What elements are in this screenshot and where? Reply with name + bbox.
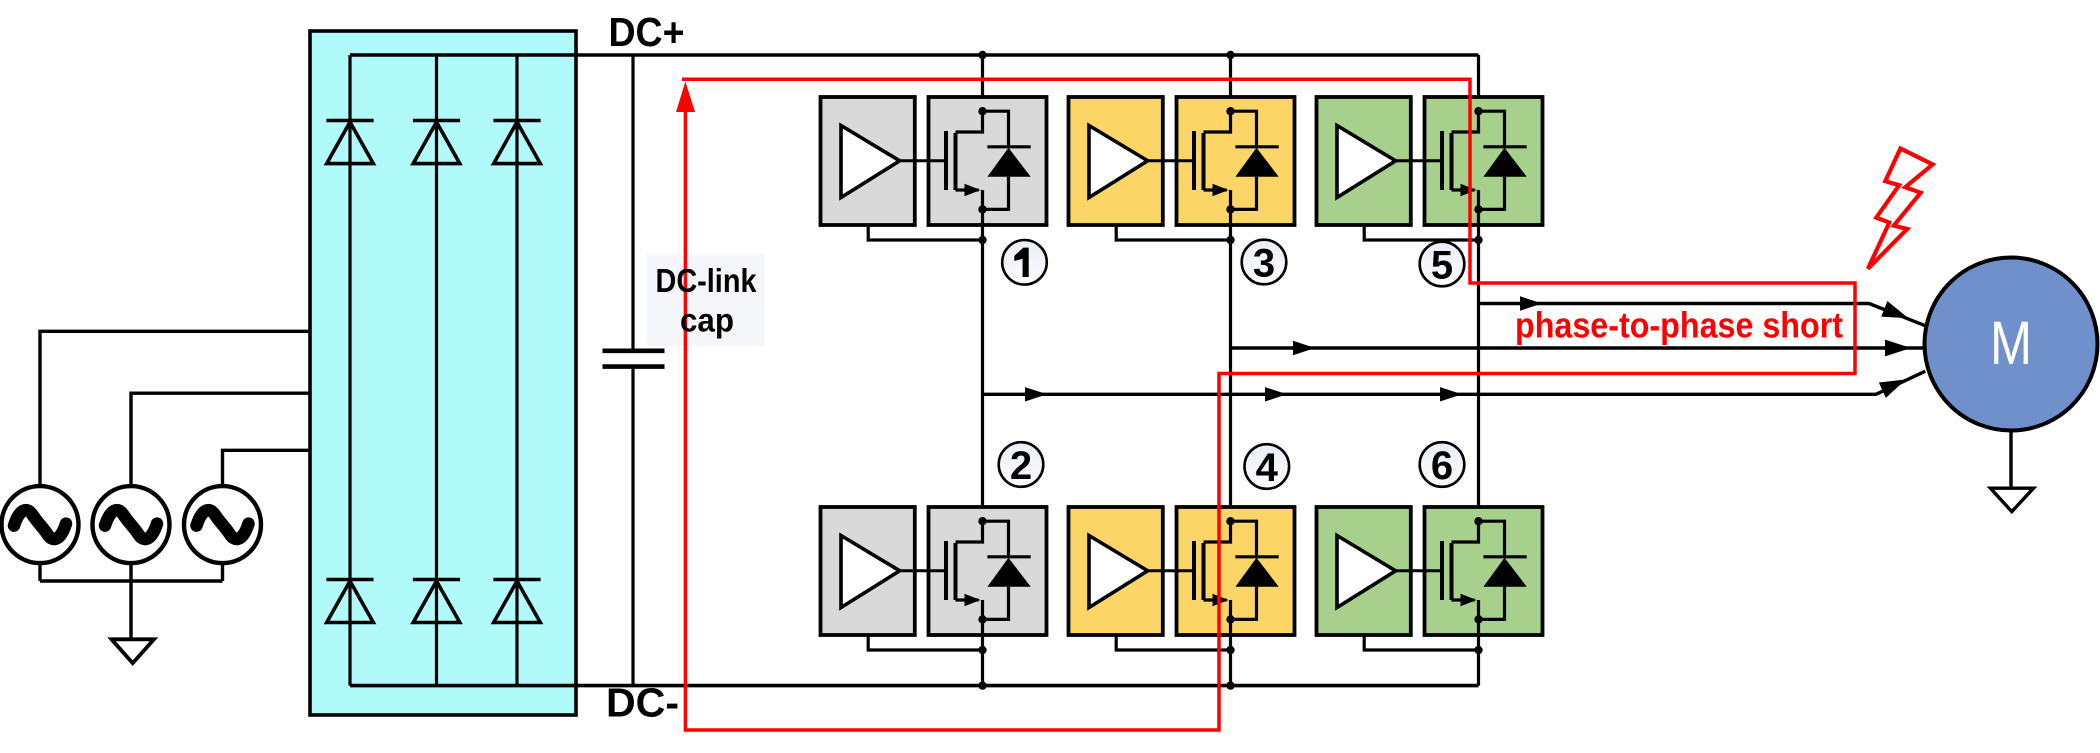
svg-text:cap: cap (680, 302, 734, 339)
svg-text:DC+: DC+ (609, 9, 685, 55)
svg-text:5: 5 (1431, 244, 1453, 288)
svg-text:4: 4 (1256, 446, 1279, 490)
svg-text:DC-link: DC-link (656, 262, 758, 299)
svg-text:2: 2 (1010, 444, 1032, 488)
svg-text:3: 3 (1253, 242, 1275, 286)
svg-text:M: M (1990, 309, 2032, 377)
svg-text:6: 6 (1431, 444, 1453, 488)
svg-text:phase-to-phase short: phase-to-phase short (1515, 305, 1843, 346)
svg-text:DC-: DC- (606, 680, 679, 726)
